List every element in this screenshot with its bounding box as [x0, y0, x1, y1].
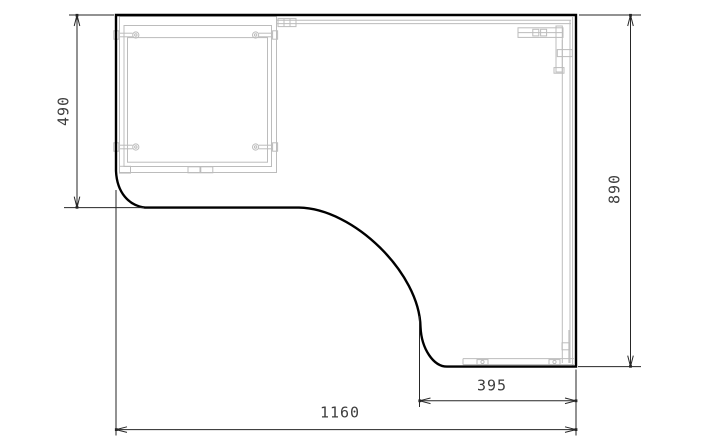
cad-drawing-canvas: 490 890 395 1160 — [0, 0, 702, 437]
dim-label-overall-width: 1160 — [320, 406, 360, 421]
technical-drawing — [0, 0, 702, 437]
dim-label-right-height: 890 — [608, 174, 623, 204]
dim-490-lines — [64, 14, 144, 209]
frame-rails — [277, 17, 575, 366]
dim-label-left-depth: 490 — [57, 96, 72, 126]
dim-label-corner-return-width: 395 — [477, 379, 507, 394]
pedestal-frame — [114, 17, 296, 174]
desk-outline — [116, 15, 576, 367]
dim-1160-lines — [115, 190, 577, 436]
